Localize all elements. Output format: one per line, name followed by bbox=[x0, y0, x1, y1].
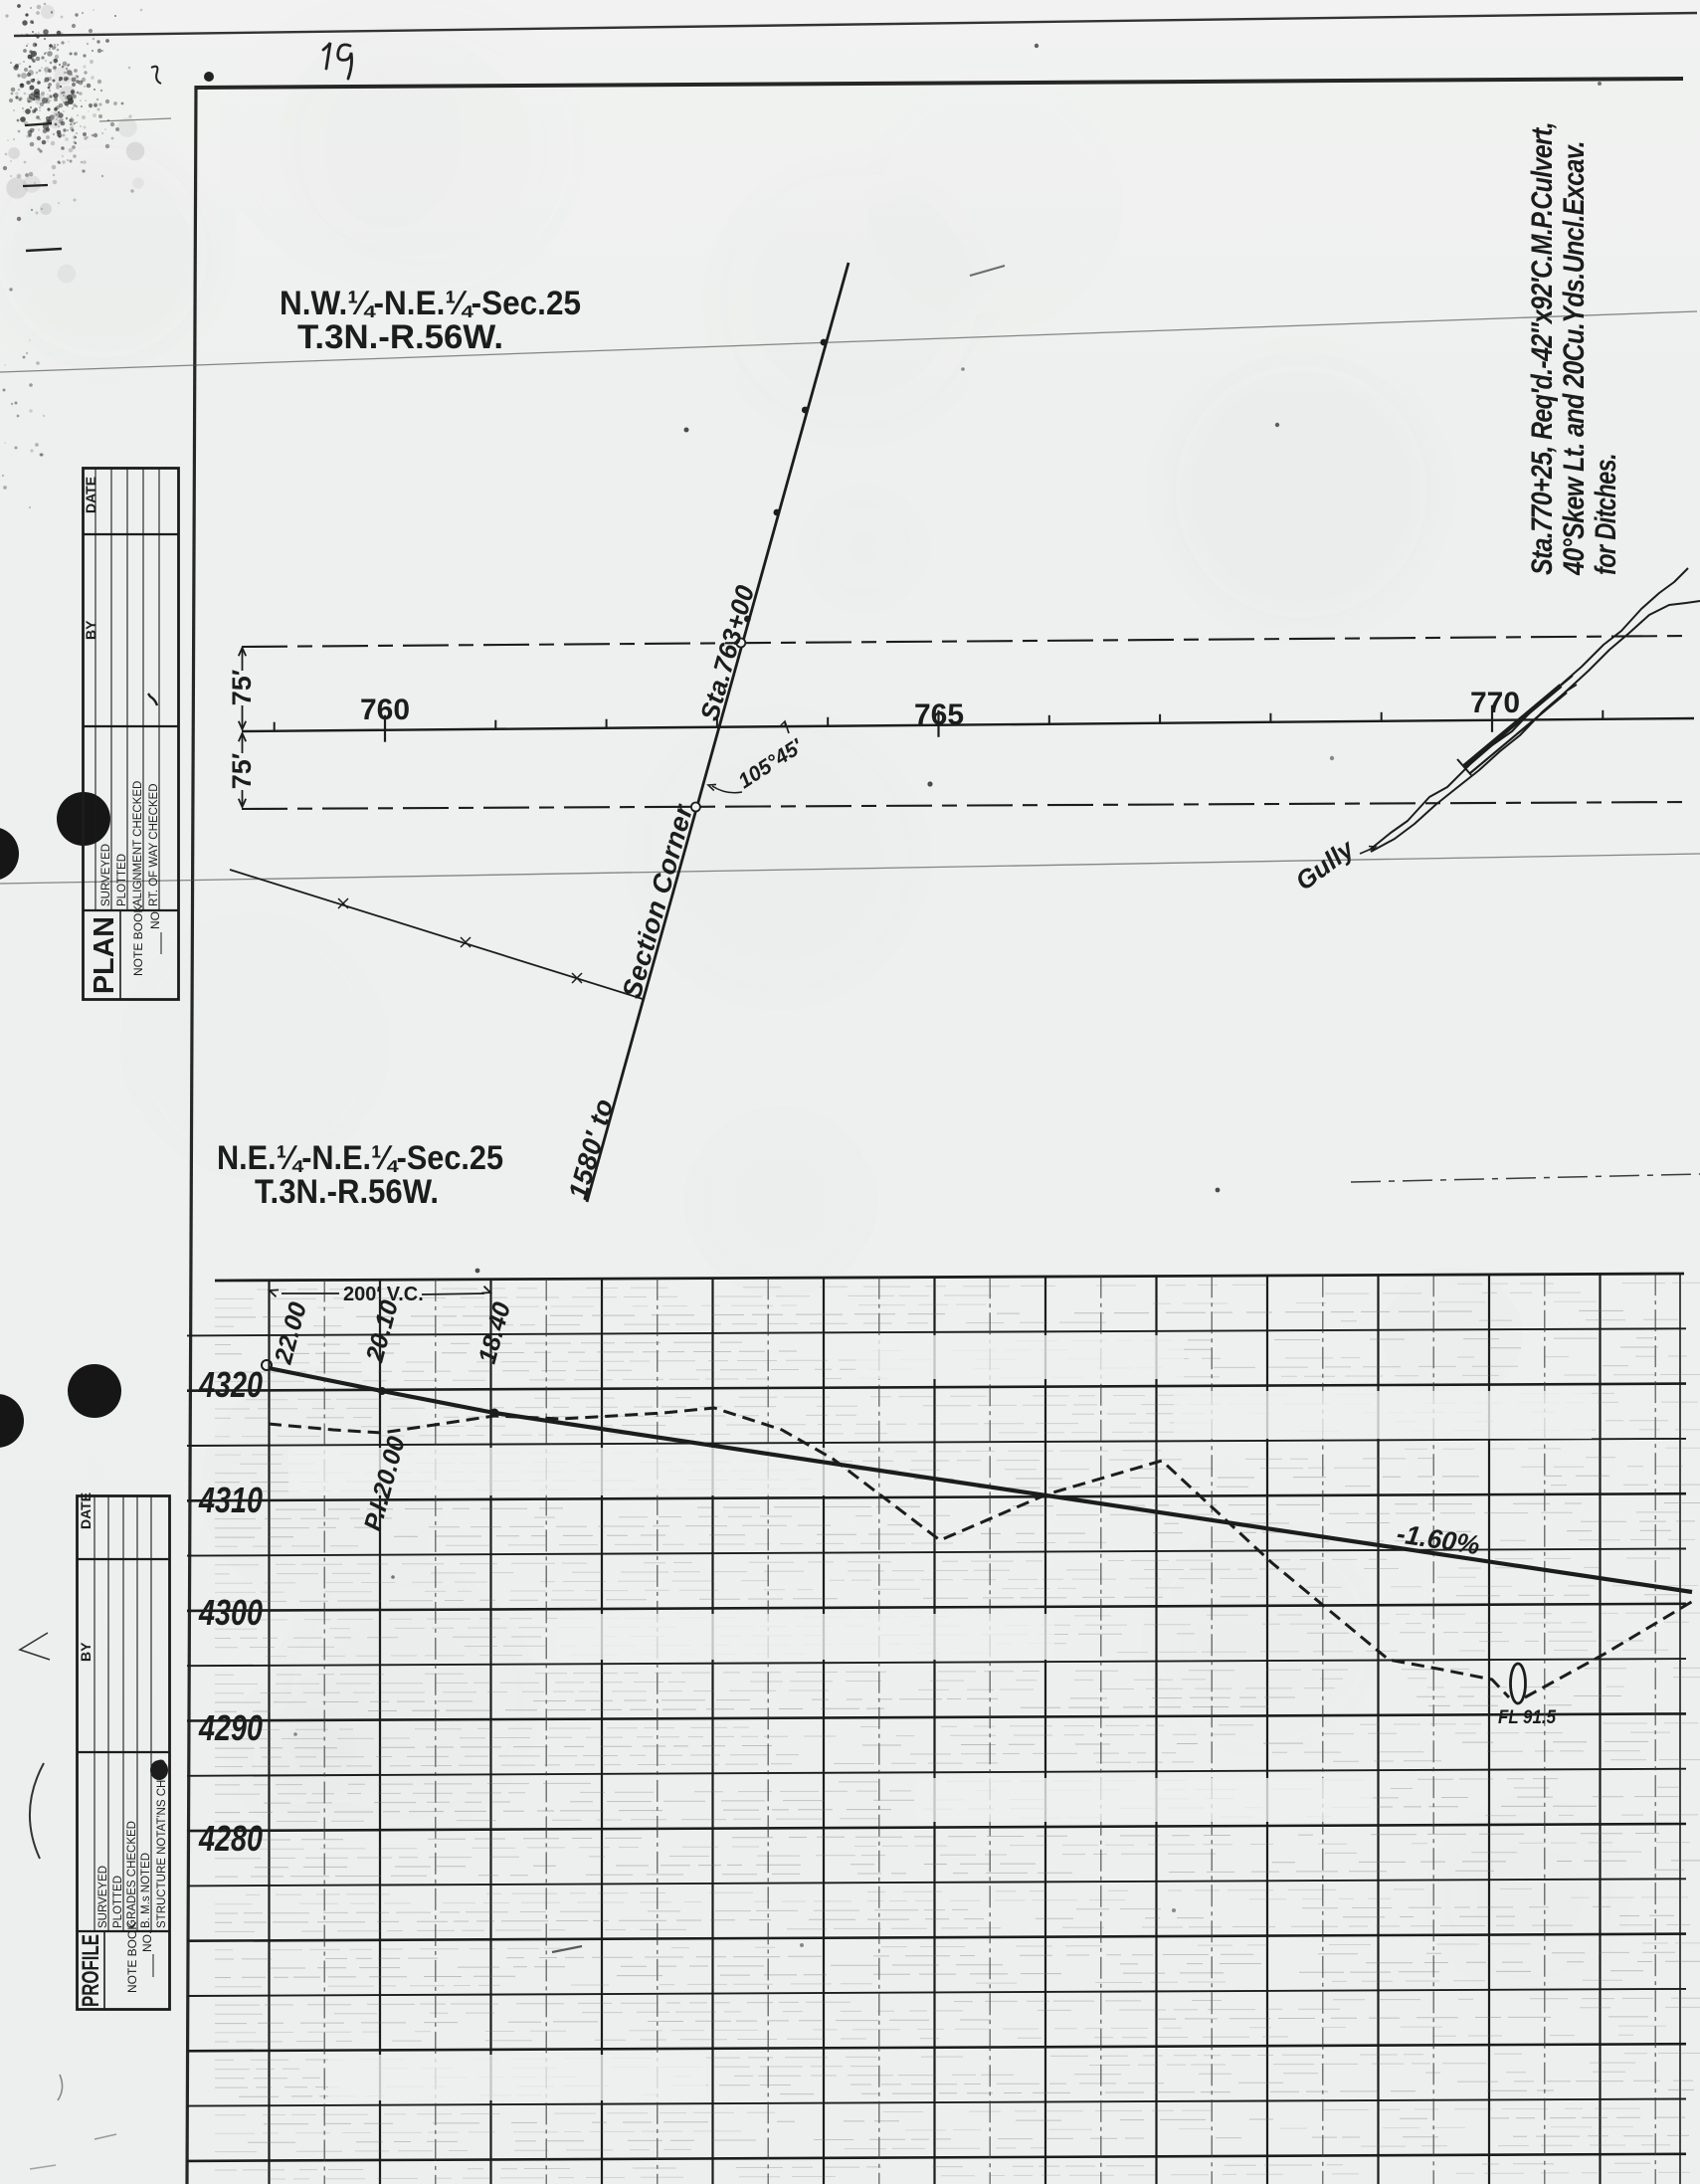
svg-text:BY: BY bbox=[78, 1642, 94, 1662]
svg-text:4300: 4300 bbox=[198, 1592, 263, 1633]
svg-text:GRADES CHECKED: GRADES CHECKED bbox=[126, 1821, 138, 1928]
svg-text:PLOTTED: PLOTTED bbox=[112, 1876, 124, 1928]
svg-text:SURVEYED: SURVEYED bbox=[97, 1866, 109, 1928]
svg-text:N.E.¼-N.E.¼-Sec.25: N.E.¼-N.E.¼-Sec.25 bbox=[217, 1139, 503, 1177]
svg-text:4310: 4310 bbox=[198, 1480, 263, 1520]
svg-text:NOTE BOOK: NOTE BOOK bbox=[131, 905, 145, 976]
svg-text:N.W.¼-N.E.¼-Sec.25: N.W.¼-N.E.¼-Sec.25 bbox=[280, 285, 581, 322]
svg-text:PLOTTED: PLOTTED bbox=[116, 854, 128, 906]
svg-text:SURVEYED: SURVEYED bbox=[100, 844, 112, 906]
svg-text:4280: 4280 bbox=[198, 1818, 263, 1859]
svg-text:ALIGNMENT CHECKED: ALIGNMENT CHECKED bbox=[132, 781, 144, 906]
svg-text:for Ditches.: for Ditches. bbox=[1590, 454, 1622, 575]
svg-text:NO.: NO. bbox=[148, 908, 162, 929]
svg-text:STRUCTURE NOTAT′NS CH′K’D: STRUCTURE NOTAT′NS CH′K’D bbox=[156, 1759, 168, 1928]
svg-text:BY: BY bbox=[83, 620, 98, 640]
svg-text:NOTE BOOK: NOTE BOOK bbox=[125, 1922, 139, 1993]
svg-text:Sta.770+25, Req′d.-42″x92′C.M.: Sta.770+25, Req′d.-42″x92′C.M.P.Culvert, bbox=[1526, 122, 1559, 575]
svg-text:PLAN: PLAN bbox=[89, 916, 120, 994]
svg-text:T.3N.-R.56W.: T.3N.-R.56W. bbox=[255, 1173, 439, 1211]
svg-text:DATE: DATE bbox=[78, 1492, 94, 1529]
svg-text:FL 91.5: FL 91.5 bbox=[1498, 1707, 1556, 1728]
svg-text:75′: 75′ bbox=[227, 670, 257, 706]
svg-text:T.3N.-R.56W.: T.3N.-R.56W. bbox=[297, 318, 503, 356]
svg-text:RT. OF WAY CHECKED: RT. OF WAY CHECKED bbox=[148, 783, 160, 906]
svg-text:NO.: NO. bbox=[140, 1931, 154, 1952]
svg-text:4320: 4320 bbox=[198, 1364, 263, 1405]
svg-text:DATE: DATE bbox=[83, 477, 98, 513]
svg-text:765: 765 bbox=[914, 698, 964, 731]
svg-text:75′: 75′ bbox=[227, 753, 257, 790]
svg-text:B. M.s NOTED: B. M.s NOTED bbox=[140, 1853, 152, 1928]
svg-text:760: 760 bbox=[360, 694, 410, 726]
svg-text:4290: 4290 bbox=[198, 1707, 263, 1748]
svg-text:40°Skew Lt. and 20Cu.Yds.Uncl.: 40°Skew Lt. and 20Cu.Yds.Uncl.Excav. bbox=[1558, 141, 1591, 576]
svg-text:770: 770 bbox=[1470, 687, 1520, 719]
svg-text:PROFILE: PROFILE bbox=[78, 1934, 104, 2007]
